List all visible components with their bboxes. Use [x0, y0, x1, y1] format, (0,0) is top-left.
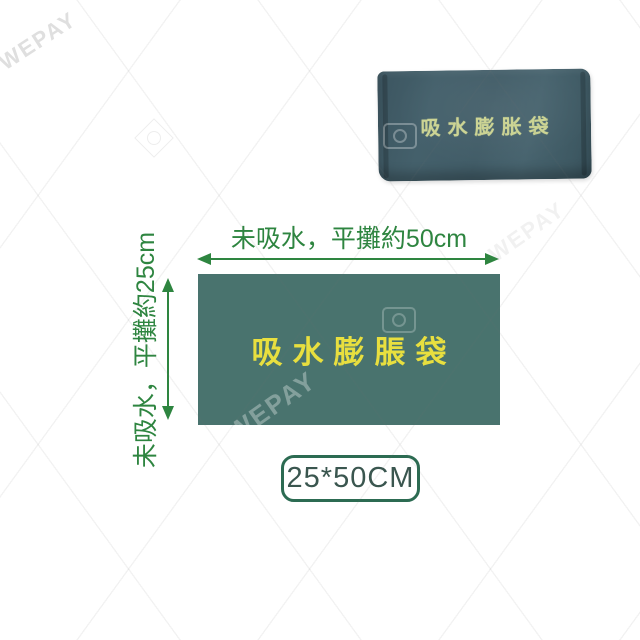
flat-bag-rectangle: 吸水膨脹袋	[198, 274, 500, 425]
width-dimension-label: 未吸水，平攤約50cm	[198, 219, 500, 255]
height-dimension-label: 未吸水，平攤約25cm	[132, 220, 160, 480]
bag-embroidered-text: 吸水膨胀袋	[413, 110, 555, 141]
product-image-canvas: 吸水膨胀袋 未吸水，平攤約50cm 未吸水，平攤約25cm 吸水膨脹袋 25*5…	[0, 0, 640, 640]
width-arrow	[196, 251, 500, 267]
height-arrow	[160, 277, 176, 421]
watermark-text: WEPAY	[0, 0, 95, 85]
size-badge: 25*50CM	[281, 455, 420, 502]
diamond-watermark-icon	[134, 118, 174, 158]
bag-left-seam	[382, 74, 388, 178]
product-photo-bag: 吸水膨胀袋	[377, 69, 592, 182]
bag-right-seam	[580, 72, 586, 176]
flat-bag-text: 吸水膨脹袋	[242, 327, 457, 372]
